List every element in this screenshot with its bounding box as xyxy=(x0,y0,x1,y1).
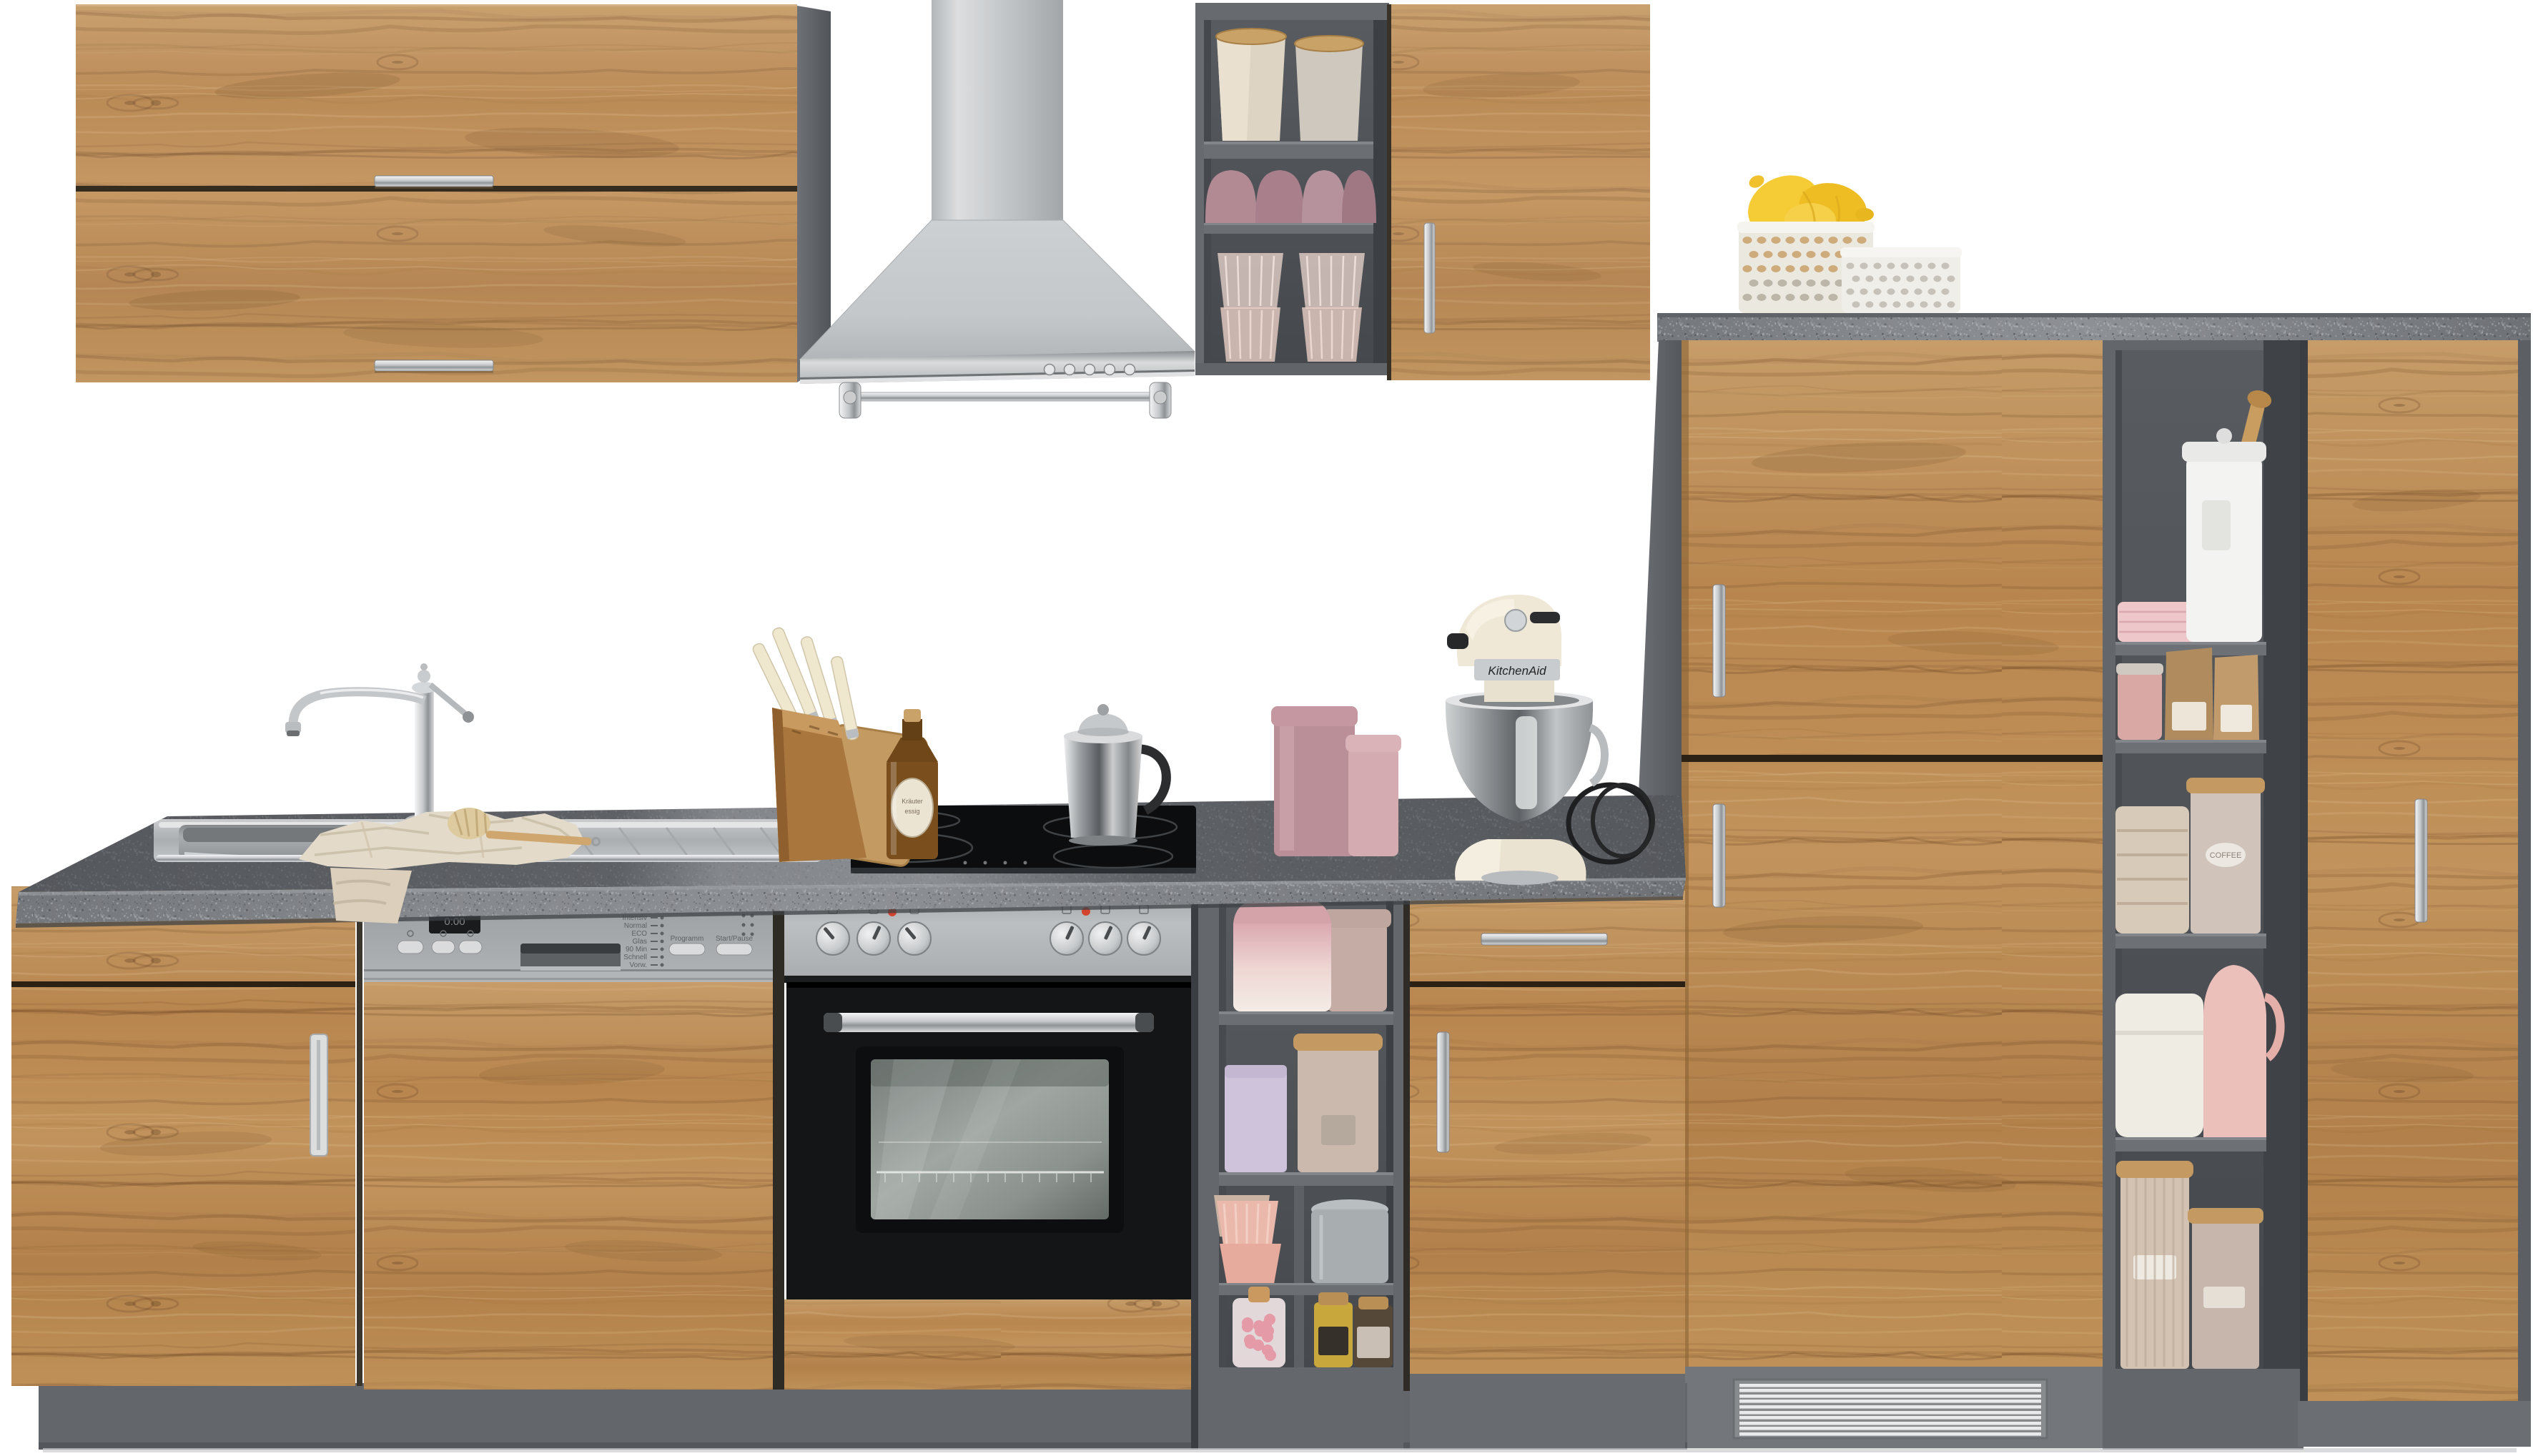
svg-text:90 Min: 90 Min xyxy=(626,946,647,954)
svg-text:Vorw.: Vorw. xyxy=(630,961,647,969)
svg-text:essig: essig xyxy=(904,808,919,815)
svg-text:COFFEE: COFFEE xyxy=(2210,851,2242,860)
svg-text:Glas: Glas xyxy=(632,938,647,946)
svg-text:Start/Pause: Start/Pause xyxy=(716,935,754,943)
svg-text:KitchenAid: KitchenAid xyxy=(1488,664,1546,678)
svg-text:Kräuter: Kräuter xyxy=(902,798,923,805)
svg-text:Normal: Normal xyxy=(624,922,647,930)
svg-text:Schnell: Schnell xyxy=(623,954,647,961)
svg-text:Programm: Programm xyxy=(671,935,704,943)
svg-text:ECO: ECO xyxy=(631,930,647,938)
